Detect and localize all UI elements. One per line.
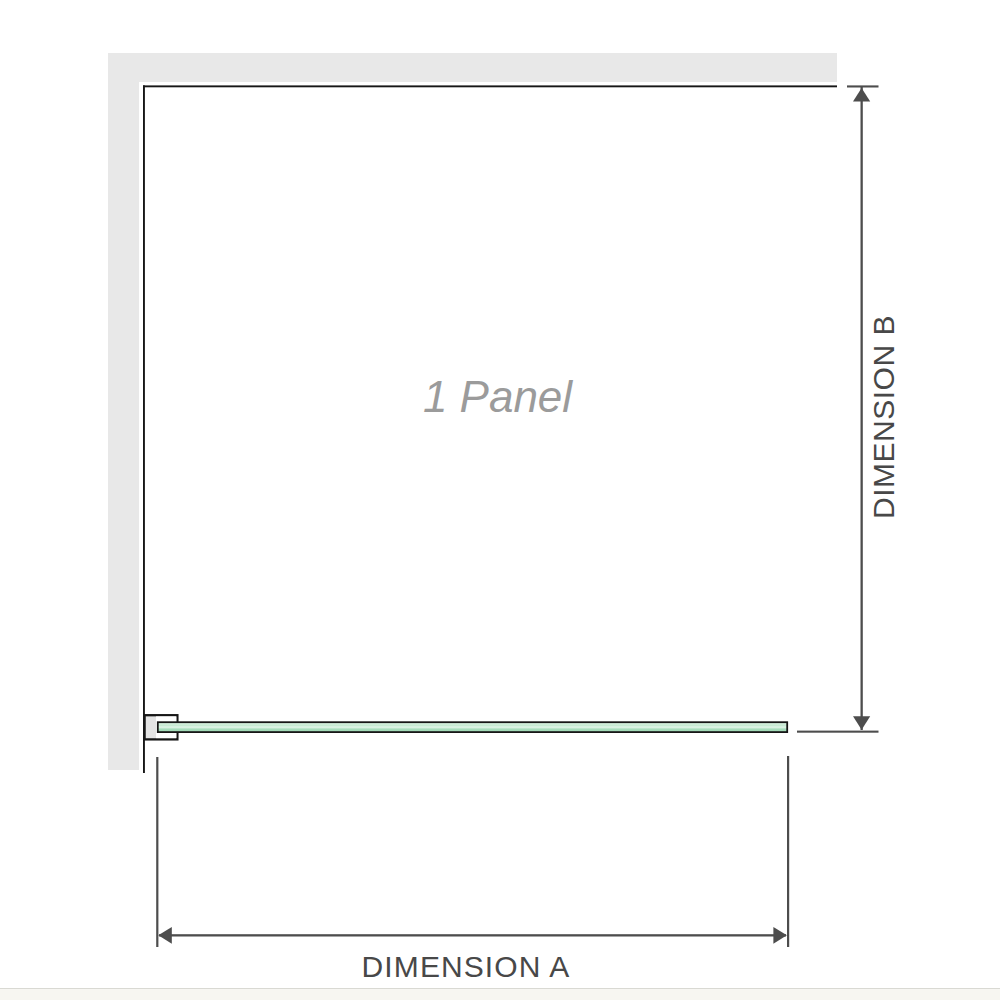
svg-text:1 Panel: 1 Panel <box>423 372 573 421</box>
svg-text:DIMENSION A: DIMENSION A <box>362 950 571 983</box>
svg-text:DIMENSION B: DIMENSION B <box>867 315 900 519</box>
